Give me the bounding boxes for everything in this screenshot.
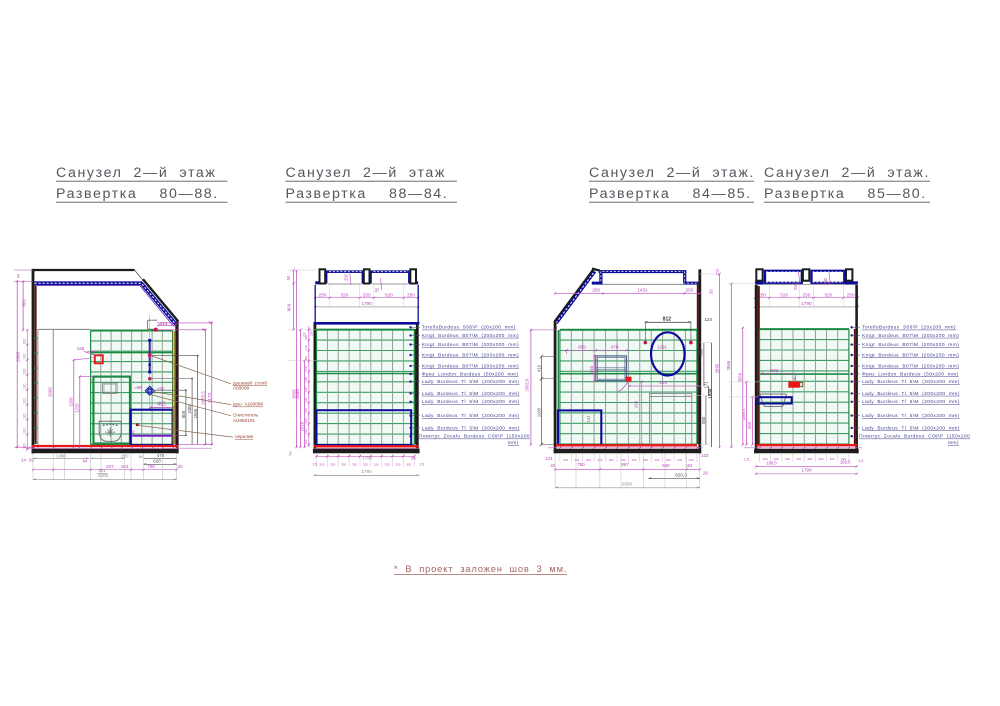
svg-text:1830: 1830 (708, 388, 713, 399)
svg-text:20: 20 (703, 470, 708, 475)
svg-text:320: 320 (363, 462, 368, 466)
svg-text:2060: 2060 (48, 387, 53, 397)
svg-text:2065.5: 2065.5 (200, 391, 205, 405)
svg-text:2055: 2055 (295, 389, 300, 399)
svg-text:душевой столб: душевой столб (233, 379, 267, 385)
svg-text:Фриз London Burdeus (50x200: Фриз London Burdeus (50x200 mm) (862, 371, 959, 377)
svg-text:320: 320 (396, 462, 401, 466)
svg-text:mm): mm) (508, 440, 519, 446)
svg-text:169,5: 169,5 (840, 459, 851, 464)
svg-text:Lady Burdeus Tl 5\M (200x2: Lady Burdeus Tl 5\M (200x200 mm) (862, 399, 960, 405)
svg-text:Knigt Burdeus B07\M (200x20: Knigt Burdeus B07\M (200x200 mm) (422, 333, 519, 339)
svg-text:203: 203 (563, 458, 568, 462)
svg-text:320: 320 (352, 462, 357, 466)
svg-text:320: 320 (304, 397, 308, 402)
svg-text:250: 250 (686, 287, 694, 292)
svg-text:Knigt Burdeus B07\M (200x20: Knigt Burdeus B07\M (200x200 mm) (422, 342, 519, 348)
svg-text:320: 320 (319, 462, 324, 466)
svg-text:73: 73 (302, 333, 306, 337)
svg-text:320: 320 (304, 418, 308, 423)
svg-text:250: 250 (802, 292, 810, 297)
svg-text:320: 320 (304, 408, 308, 413)
svg-text:812: 812 (663, 316, 672, 322)
svg-text:Knigt Burdeus B07\M (200x20: Knigt Burdeus B07\M (200x200 mm) (862, 363, 959, 369)
svg-text:520: 520 (780, 292, 788, 297)
svg-text:250: 250 (363, 292, 371, 297)
svg-text:Lady Burdeus Tl 5\M (200x2: Lady Burdeus Tl 5\M (200x200 mm) (862, 425, 960, 431)
svg-text:250: 250 (847, 292, 855, 297)
svg-text:Lady Burdeus Tl 5\M (200x2: Lady Burdeus Tl 5\M (200x200 mm) (862, 391, 960, 397)
svg-text:перелив: перелив (235, 434, 254, 439)
svg-text:250: 250 (592, 287, 600, 292)
svg-text:* В проект заложен шов 3: * В проект заложен шов 3 мм. (394, 564, 567, 574)
svg-text:20: 20 (177, 464, 183, 469)
svg-text:50: 50 (17, 274, 21, 278)
svg-text:320: 320 (304, 345, 308, 350)
svg-text:Плинтус Zocalo Burdeus C09\: Плинтус Zocalo Burdeus C09\P (150x200 (419, 434, 530, 440)
svg-text:320: 320 (304, 429, 308, 434)
svg-text:1790: 1790 (361, 301, 372, 306)
svg-text:850: 850 (747, 421, 752, 429)
svg-text:Санузел 2—й этаж: Санузел 2—й этаж (286, 165, 446, 181)
svg-text:50: 50 (708, 289, 713, 294)
svg-text:250: 250 (407, 292, 415, 297)
svg-text:TorelloBurdeus S06\P (20x200: TorelloBurdeus S06\P (20x200 mm) (862, 325, 956, 331)
svg-text:Lady Burdeus Tl 5\M (200x2: Lady Burdeus Tl 5\M (200x200 mm) (862, 413, 960, 419)
svg-text:320: 320 (830, 457, 835, 461)
svg-text:Фриз London Burdeus (50x200: Фриз London Burdeus (50x200 mm) (422, 371, 519, 377)
svg-text:Knigt Burdeus B07\M (200x20: Knigt Burdeus B07\M (200x200 mm) (422, 363, 519, 369)
svg-text:320: 320 (304, 387, 308, 392)
svg-text:809: 809 (21, 299, 26, 307)
svg-text:320: 320 (304, 366, 308, 371)
svg-text:240: 240 (131, 430, 135, 436)
svg-text:50: 50 (375, 287, 380, 292)
svg-text:320: 320 (304, 356, 308, 361)
svg-text:120: 120 (23, 428, 27, 434)
svg-text:850: 850 (701, 416, 706, 424)
svg-text:314: 314 (160, 321, 168, 327)
svg-text:Развертка 80—88.: Развертка 80—88. (56, 186, 219, 202)
svg-text:TorelloBurdeus S06\P (20x200: TorelloBurdeus S06\P (20x200 mm) (422, 325, 516, 331)
svg-text:203: 203 (689, 458, 694, 462)
svg-text:166: 166 (77, 346, 85, 351)
svg-text:203: 203 (632, 458, 637, 462)
svg-text:120: 120 (23, 339, 27, 345)
svg-text:Санузел 2—й этаж: Санузел 2—й этаж (56, 165, 216, 181)
svg-text:1790: 1790 (801, 301, 812, 306)
svg-text:1790: 1790 (801, 468, 812, 473)
svg-text:120: 120 (23, 368, 27, 374)
svg-text:3056: 3056 (738, 372, 743, 382)
svg-text:465: 465 (157, 402, 166, 408)
svg-text:1,5: 1,5 (419, 462, 424, 466)
svg-text:200: 200 (823, 277, 828, 285)
svg-text:1790: 1790 (361, 469, 372, 474)
svg-text:200: 200 (793, 282, 798, 290)
svg-text:Санузел 2—й этаж.: Санузел 2—й этаж. (589, 165, 755, 181)
svg-text:душ А160086: душ А160086 (233, 402, 264, 407)
svg-text:Lady Burdeus Tl 5\M (200x2: Lady Burdeus Tl 5\M (200x200 mm) (422, 391, 520, 397)
svg-text:16: 16 (139, 455, 143, 459)
svg-text:620,3: 620,3 (675, 473, 687, 478)
svg-text:470: 470 (611, 344, 619, 349)
svg-text:250: 250 (318, 292, 326, 297)
svg-text:120: 120 (23, 383, 27, 389)
svg-text:107: 107 (309, 330, 313, 336)
svg-text:407: 407 (106, 464, 114, 469)
svg-text:320: 320 (374, 462, 379, 466)
svg-text:65: 65 (29, 457, 34, 462)
svg-text:750: 750 (147, 464, 155, 469)
svg-text:24: 24 (21, 457, 26, 462)
svg-text:1,5: 1,5 (312, 462, 317, 466)
svg-text:320: 320 (819, 457, 824, 461)
svg-text:203: 203 (666, 458, 671, 462)
svg-text:171: 171 (703, 381, 708, 389)
svg-text:1700: 1700 (362, 455, 372, 460)
svg-text:320: 320 (785, 457, 790, 461)
svg-text:1,5: 1,5 (858, 459, 863, 463)
svg-text:Lady Burdeus Tl 5\M (200x2: Lady Burdeus Tl 5\M (200x200 mm) (422, 425, 520, 431)
svg-text:1598: 1598 (193, 408, 198, 418)
svg-text:1225: 1225 (75, 403, 80, 413)
svg-text:2500: 2500 (622, 482, 633, 487)
svg-text:Lady Burdeus Tl 5\M (200x2: Lady Burdeus Tl 5\M (200x200 mm) (422, 379, 520, 385)
svg-text:805: 805 (181, 410, 186, 418)
svg-text:320: 320 (807, 457, 812, 461)
svg-text:Развертка 84—85.: Развертка 84—85. (589, 186, 752, 202)
svg-text:320: 320 (304, 376, 308, 381)
svg-text:Knigt Burdeus B07\M (200x20: Knigt Burdeus B07\M (200x200 mm) (862, 342, 959, 348)
svg-text:2065,9: 2065,9 (525, 378, 530, 391)
svg-text:2895: 2895 (714, 363, 719, 373)
svg-text:124: 124 (545, 456, 553, 461)
svg-text:203: 203 (609, 458, 614, 462)
svg-text:1480: 1480 (56, 453, 66, 458)
svg-text:440: 440 (589, 365, 594, 373)
svg-text:mm): mm) (948, 440, 959, 446)
svg-text:1431: 1431 (637, 287, 648, 292)
svg-text:203: 203 (654, 458, 659, 462)
svg-text:320: 320 (385, 462, 390, 466)
svg-text:≈99: ≈99 (135, 385, 143, 390)
svg-text:64: 64 (83, 458, 88, 463)
svg-text:809: 809 (287, 303, 292, 311)
svg-text:867: 867 (621, 462, 629, 467)
svg-text:750: 750 (577, 462, 585, 467)
svg-text:2500: 2500 (98, 473, 109, 478)
svg-text:2865: 2865 (16, 351, 21, 362)
svg-text:50: 50 (286, 275, 291, 280)
svg-text:320: 320 (304, 439, 308, 444)
svg-text:169,5: 169,5 (766, 460, 777, 465)
svg-text:320: 320 (406, 462, 411, 466)
svg-text:203: 203 (586, 458, 591, 462)
svg-text:1086,5: 1086,5 (741, 408, 746, 421)
svg-text:Санузел 2—й этаж.: Санузел 2—й этаж. (764, 165, 930, 181)
svg-text:320: 320 (330, 462, 335, 466)
svg-text:203: 203 (677, 458, 682, 462)
svg-text:164: 164 (634, 400, 639, 408)
svg-text:А00008: А00008 (233, 386, 250, 391)
svg-text:415: 415 (536, 364, 541, 372)
svg-text:141: 141 (586, 415, 591, 423)
svg-text:200: 200 (344, 273, 349, 281)
svg-text:520: 520 (385, 292, 393, 297)
svg-text:120: 120 (23, 443, 27, 449)
svg-text:640: 640 (662, 463, 670, 468)
svg-text:Lady Burdeus Tl 5\M (200x2: Lady Burdeus Tl 5\M (200x200 mm) (422, 399, 520, 405)
svg-text:Knigt Burdeus B07\M (200x20: Knigt Burdeus B07\M (200x200 mm) (862, 352, 959, 358)
svg-text:689: 689 (578, 344, 586, 349)
svg-text:Lady Burdeus Tl 5\M (200x2: Lady Burdeus Tl 5\M (200x200 mm) (422, 413, 520, 419)
svg-text:2865: 2865 (726, 360, 731, 370)
svg-text:Knigt Burdeus B07\M (200x20: Knigt Burdeus B07\M (200x200 mm) (422, 352, 519, 358)
svg-text:103: 103 (701, 453, 709, 458)
svg-text:320: 320 (341, 462, 346, 466)
svg-text:Плинтус Zocalo Burdeus C09\: Плинтус Zocalo Burdeus C09\P (150x200 (859, 434, 970, 440)
svg-text:1508: 1508 (69, 397, 74, 407)
svg-text:Очиститель: Очиститель (233, 413, 259, 418)
svg-text:220: 220 (659, 380, 667, 385)
svg-text:Развертка 88—84.: Развертка 88—84. (286, 186, 449, 202)
svg-text:120: 120 (23, 413, 27, 419)
svg-text:120: 120 (23, 398, 27, 404)
svg-text:203: 203 (643, 458, 648, 462)
svg-text:AU860101: AU860101 (233, 418, 256, 423)
svg-text:Lady Burdeus Tl 5\M (200x2: Lady Burdeus Tl 5\M (200x200 mm) (862, 379, 960, 385)
svg-text:60: 60 (411, 455, 416, 460)
svg-text:1168: 1168 (536, 407, 541, 417)
svg-text:120: 120 (23, 353, 27, 359)
svg-text:101: 101 (98, 468, 106, 473)
svg-text:50: 50 (289, 451, 293, 455)
svg-text:476: 476 (157, 453, 165, 458)
svg-text:520: 520 (341, 292, 349, 297)
svg-text:1291: 1291 (657, 344, 668, 349)
svg-text:800: 800 (699, 348, 704, 356)
svg-text:Развертка 85—80.: Развертка 85—80. (764, 186, 927, 202)
svg-text:124: 124 (705, 317, 713, 322)
svg-text:520: 520 (825, 292, 833, 297)
svg-text:Knigt Burdeus B07\M (200x20: Knigt Burdeus B07\M (200x200 mm) (862, 333, 959, 339)
svg-text:692: 692 (771, 368, 779, 373)
svg-text:1,5: 1,5 (744, 457, 749, 461)
svg-text:320: 320 (796, 457, 801, 461)
